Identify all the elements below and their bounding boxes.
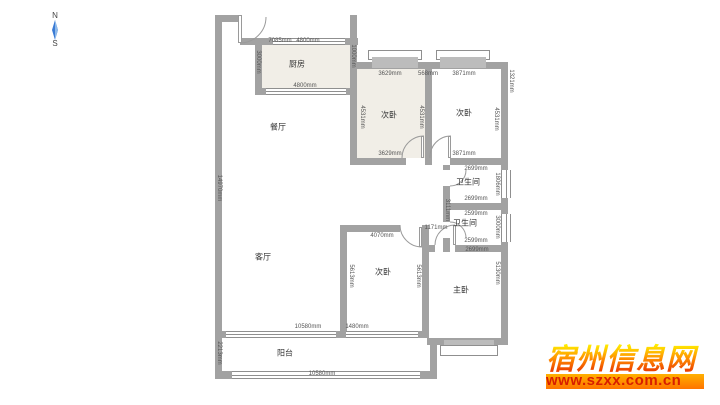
dim-bath1-bottom: 2699mm — [464, 196, 487, 202]
dim-living-bottom: 10580mm — [295, 324, 322, 330]
wall-bath-left-1 — [443, 165, 450, 170]
room-label-living: 客厅 — [255, 252, 271, 263]
dim-bath2-right: 3000mm — [494, 215, 500, 238]
dim-kitchen-right: 1000mm — [350, 44, 356, 67]
compass-south-label: S — [52, 40, 57, 48]
bed-tr-door-leaf — [448, 136, 451, 158]
wall-top-left — [215, 15, 240, 22]
room-label-dining: 餐厅 — [270, 122, 286, 133]
bed-tl-door-leaf — [421, 136, 424, 158]
watermark-url: www.szxx.com.cn — [546, 374, 704, 389]
dim-bath2-top: 2599mm — [464, 211, 487, 217]
wall-bed-b-right — [422, 225, 429, 338]
wall-bedrooms-bottom-2 — [425, 158, 432, 165]
compass: N S — [50, 12, 60, 48]
dim-bed-tl-top: 3629mm — [378, 71, 401, 77]
wall-bed-b-left — [340, 225, 347, 338]
dim-left-total: 14970mm — [216, 175, 222, 202]
floorplan-canvas: N S — [0, 0, 720, 405]
room-label-bedroom-bottom: 次卧 — [375, 267, 391, 278]
dim-kitchen-left: 3000mm — [255, 50, 261, 73]
room-label-bath-top: 卫生间 — [456, 177, 480, 188]
dim-kitchen-top-2: 4800mm — [296, 38, 319, 44]
dim-bed-b-top: 4070mm — [370, 233, 393, 239]
dim-bed-b-right: 5613mm — [415, 264, 421, 287]
dim-kitchen-bottom: 4800mm — [293, 83, 316, 89]
dim-bath1-top: 2699mm — [464, 166, 487, 172]
bed-b-bottom-window — [346, 331, 418, 338]
dim-bed-tl-bottom: 3629mm — [378, 151, 401, 157]
dim-bed-tr-bottom: 3871mm — [452, 151, 475, 157]
dim-right-outside: 1321mm — [508, 69, 514, 92]
watermark-title: 宿州信息网 — [546, 342, 718, 376]
wall-bath-left-3 — [443, 238, 450, 252]
bath-bottom-window — [501, 214, 511, 242]
bedroom-top-left-window-sill — [372, 57, 418, 68]
room-label-bedroom-top-left: 次卧 — [381, 110, 397, 121]
wall-balcony-right — [430, 338, 437, 379]
master-window — [440, 345, 498, 356]
room-label-bath-bottom: 卫生间 — [453, 218, 477, 229]
dim-bed-tr-top: 3871mm — [452, 71, 475, 77]
dim-balcony-left: 2213mm — [216, 341, 222, 364]
bath-top-window — [501, 170, 511, 198]
dim-kitchen-top-1: 7085mm — [268, 38, 291, 44]
dim-master-top: 2699mm — [465, 247, 488, 253]
entry-door-leaf — [238, 15, 242, 43]
dim-bed-tr-right: 4531mm — [493, 107, 499, 130]
bed-b-door-leaf — [419, 227, 422, 247]
wall-bedrooms-bottom-1 — [350, 158, 406, 165]
living-bottom-window — [226, 331, 336, 338]
compass-needle-icon — [50, 20, 60, 40]
dim-gap-top: 568mm — [418, 71, 438, 77]
wall-kitchen-right — [350, 15, 357, 165]
compass-north-label: N — [52, 12, 58, 20]
dim-balcony-bottom: 10580mm — [309, 371, 336, 377]
wall-bath-divider — [450, 203, 501, 210]
room-label-kitchen: 厨房 — [289, 59, 305, 70]
bedroom-top-right-window-sill — [440, 57, 486, 68]
dim-living-bottom-2: 1480mm — [345, 324, 368, 330]
wall-right-outer — [501, 62, 508, 345]
room-label-balcony: 阳台 — [277, 348, 293, 359]
wall-bedrooms-bottom-3 — [450, 158, 508, 165]
watermark: 宿州信息网 www.szxx.com.cn — [546, 342, 718, 389]
dim-corridor-width: 1171mm — [425, 225, 448, 231]
room-label-master: 主卧 — [453, 285, 469, 296]
room-label-bedroom-top-right: 次卧 — [456, 108, 472, 119]
dim-bed-tl-right: 4531mm — [418, 105, 424, 128]
dim-master-right: 5130mm — [494, 261, 500, 284]
dim-bath2-bottom: 2599mm — [464, 238, 487, 244]
wall-bedrooms-divider — [425, 69, 432, 158]
dim-bed-tl-left: 4531mm — [359, 105, 365, 128]
kitchen-bottom-window — [266, 88, 346, 95]
dim-corridor-height: 3111mm — [444, 199, 450, 221]
dim-bath1-right: 1806mm — [494, 172, 500, 195]
dim-bed-b-left: 5613mm — [348, 264, 354, 287]
wall-bed-b-top — [340, 225, 400, 232]
kitchen-floor — [262, 45, 350, 88]
